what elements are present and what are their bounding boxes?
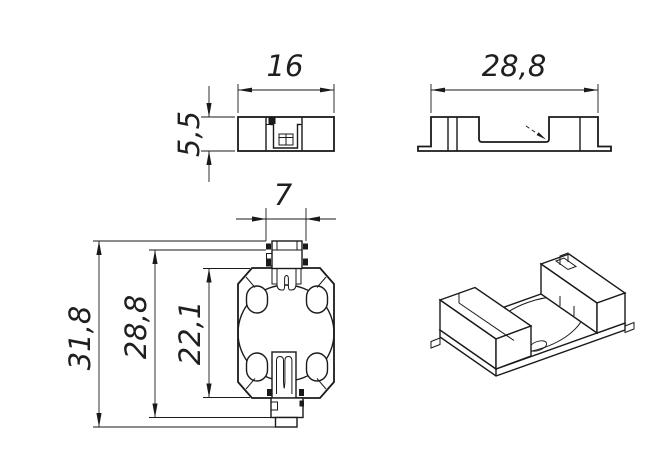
drawing-svg: 16 5,5 28,8 — [0, 0, 650, 467]
front-contact-tab — [269, 117, 276, 124]
bottom-fork-contact — [267, 352, 304, 398]
iso-far-block — [541, 253, 625, 333]
iso-near-block — [440, 288, 531, 370]
dim-front-height-label: 5,5 — [172, 111, 206, 157]
leader-arrow — [526, 126, 546, 140]
top-terminal-cap — [266, 241, 308, 269]
isometric-view — [431, 253, 634, 376]
front-view: 16 5,5 — [172, 49, 334, 182]
dim-side-length: 28,8 — [431, 49, 598, 113]
dim-front-width: 16 — [238, 49, 334, 113]
dim-tab-width: 7 — [236, 178, 336, 241]
side-inner-edges — [448, 117, 580, 151]
front-contact-window-bars — [279, 134, 293, 145]
dim-front-width-label: 16 — [267, 49, 304, 83]
drawing-sheet: 16 5,5 28,8 — [0, 0, 650, 467]
dim-tab-width-label: 7 — [274, 178, 293, 212]
dim-front-height: 5,5 — [172, 86, 235, 182]
dim-overall-length-label: 31,8 — [63, 306, 97, 371]
dim-contact-span-label: 28,8 — [119, 295, 153, 360]
side-view: 28,8 — [418, 49, 611, 151]
dim-side-length-label: 28,8 — [482, 49, 547, 83]
bottom-terminal-tab — [271, 398, 304, 427]
dim-body-length-label: 22,1 — [173, 301, 207, 366]
top-view: 7 31,8 28,8 22,1 — [63, 178, 336, 427]
side-outline — [418, 117, 611, 151]
